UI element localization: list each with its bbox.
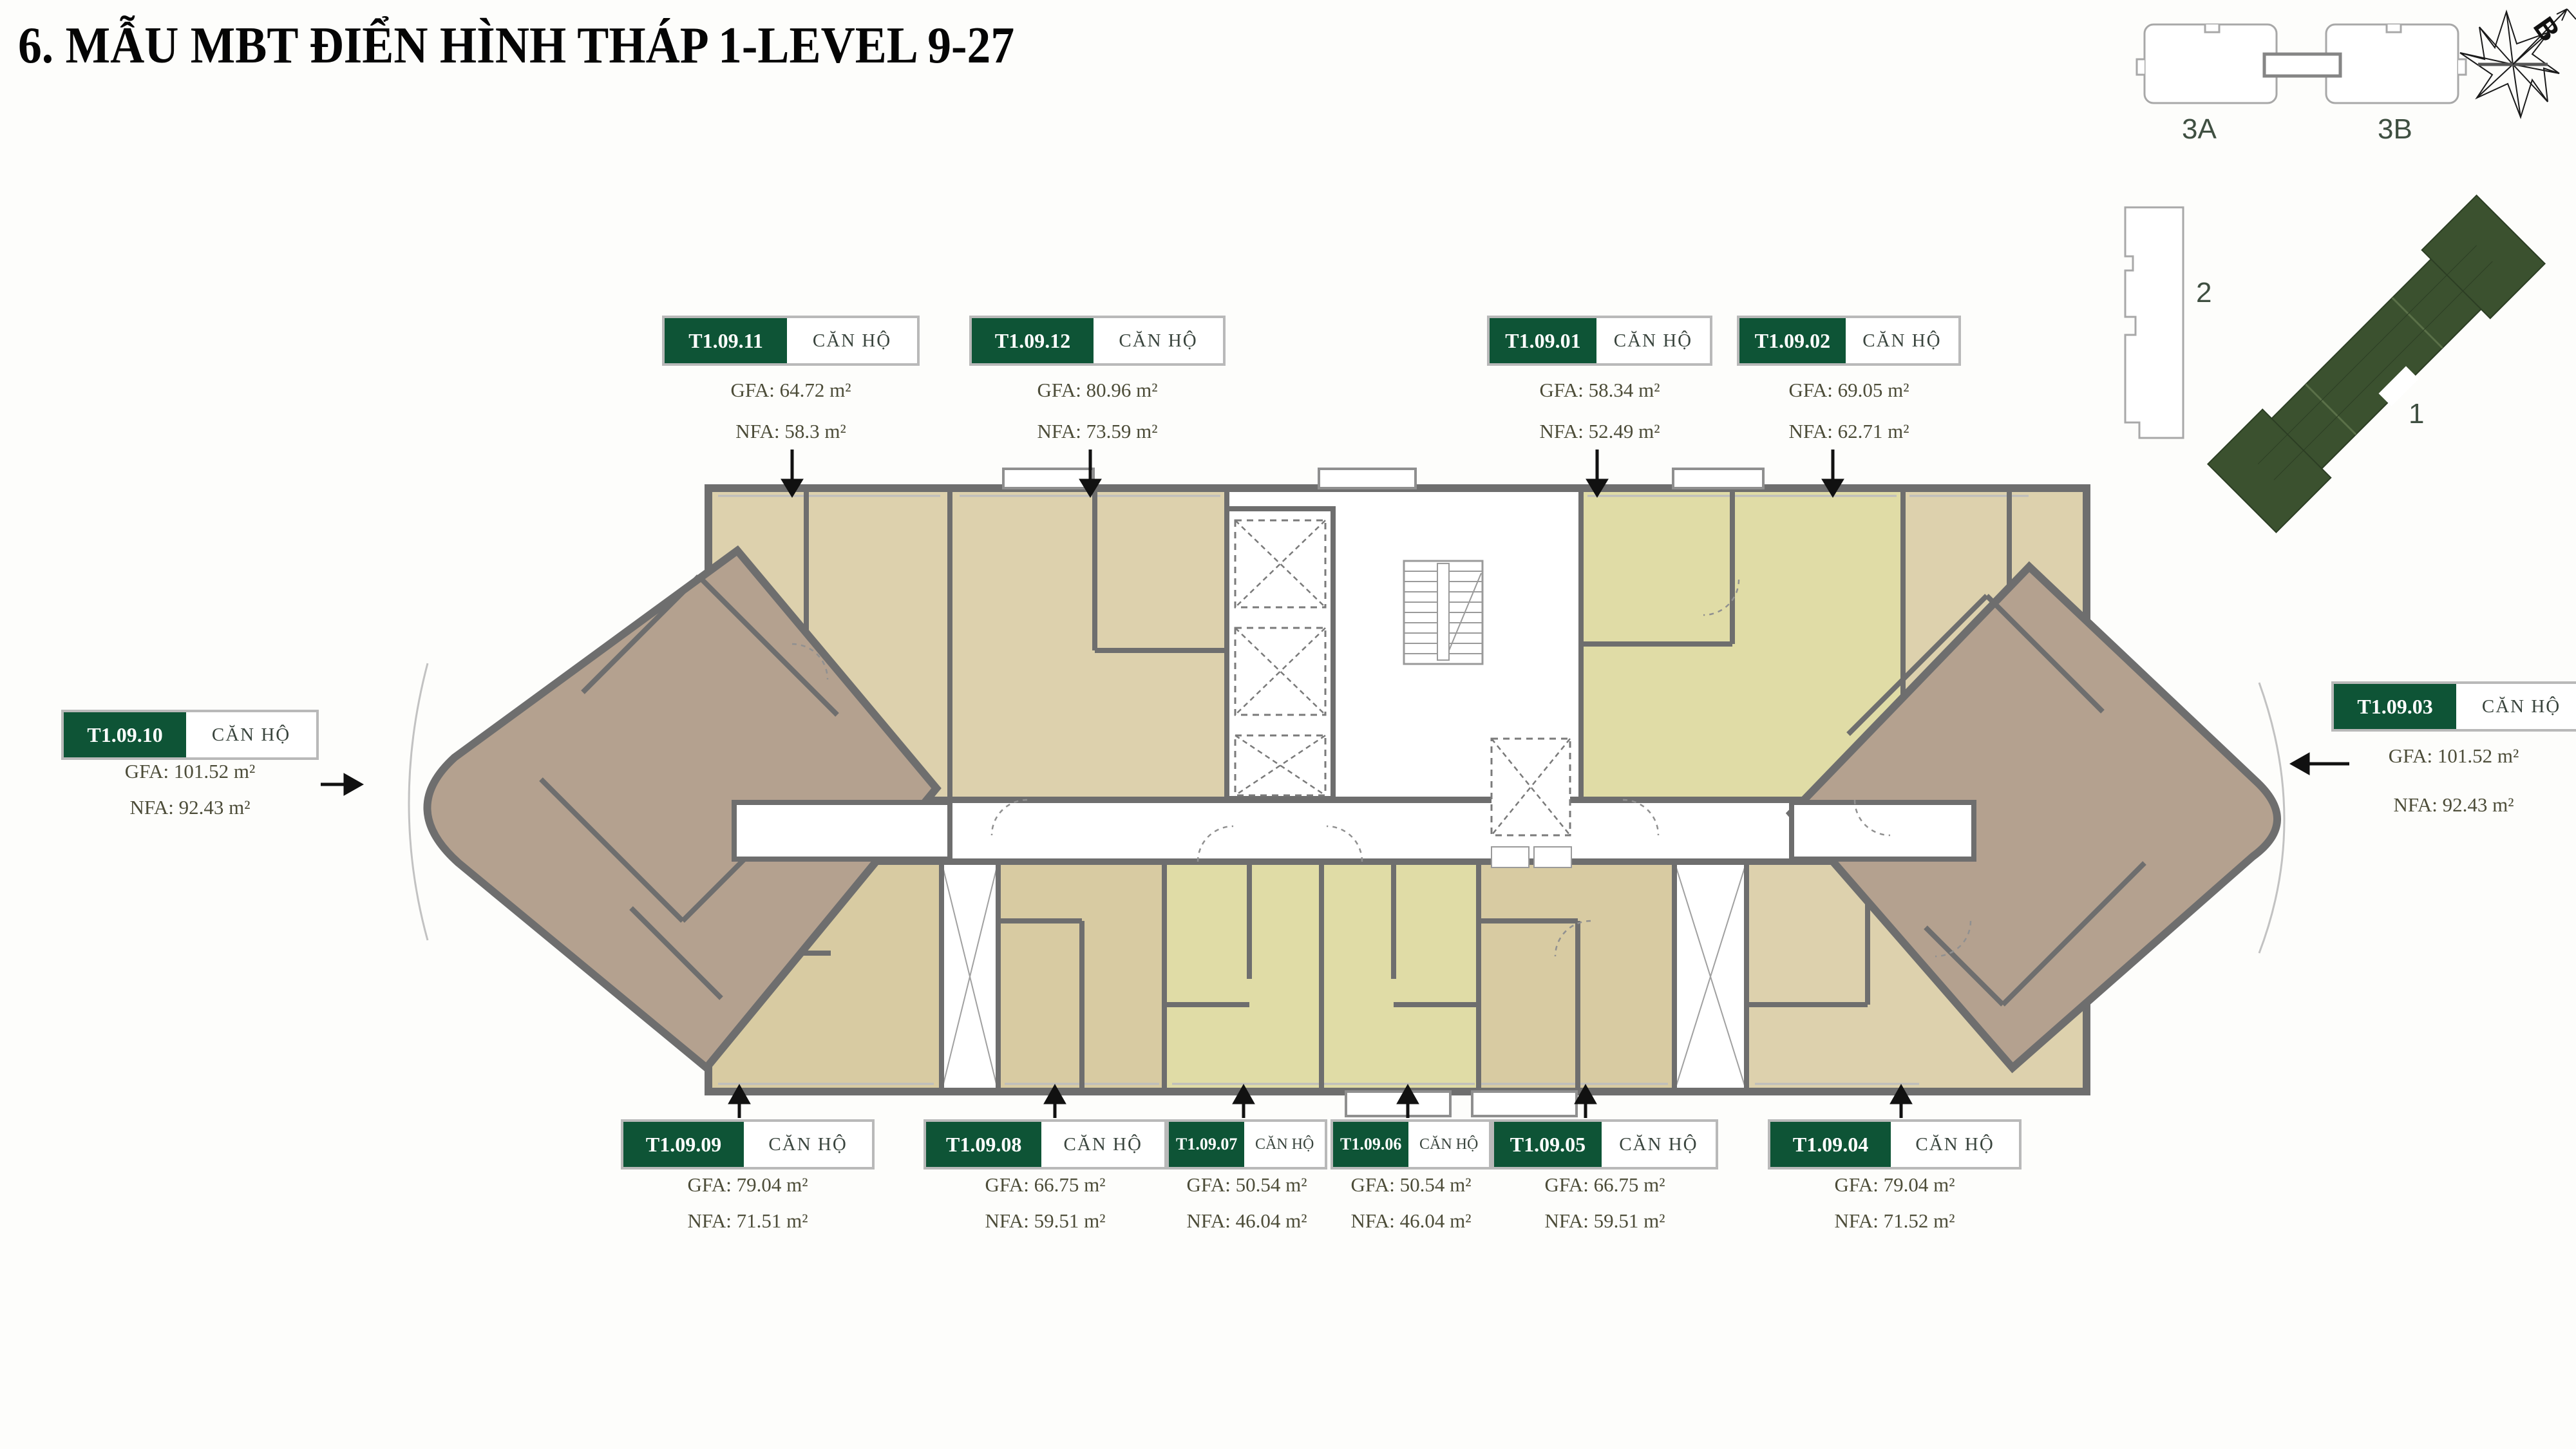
unit-type: CĂN HỘ	[1244, 1122, 1325, 1167]
unit-gfa: GFA: 80.96 m²	[969, 379, 1226, 402]
unit-gfa: GFA: 58.34 m²	[1487, 379, 1712, 402]
unit-label-t1-09-04: T1.09.04 CĂN HỘ	[1768, 1119, 2022, 1170]
unit-label-t1-09-12: T1.09.12 CĂN HỘ	[969, 316, 1226, 366]
unit-label-t1-09-08: T1.09.08 CĂN HỘ	[923, 1119, 1167, 1170]
keyplan-label-2: 2	[2196, 277, 2211, 309]
unit-label-t1-09-09: T1.09.09 CĂN HỘ	[621, 1119, 875, 1170]
unit-gfa: GFA: 101.52 m²	[61, 760, 319, 783]
staircase	[1404, 561, 1482, 664]
unit-code: T1.09.03	[2334, 684, 2456, 729]
key-plan	[2125, 9, 2576, 533]
keyplan-block-3b	[2326, 24, 2458, 103]
unit-type: CĂN HỘ	[1596, 318, 1710, 363]
page-title: 6. MẪU MBT ĐIỂN HÌNH THÁP 1-LEVEL 9-27	[18, 17, 1014, 75]
unit-nfa: NFA: 92.43 m²	[2331, 793, 2576, 817]
keyplan-label-1: 1	[2409, 398, 2424, 430]
unit-label-t1-09-02: T1.09.02 CĂN HỘ	[1737, 316, 1961, 366]
unit-type: CĂN HỘ	[1602, 1122, 1716, 1167]
unit-type: CĂN HỘ	[1891, 1122, 2019, 1167]
unit-type: CĂN HỘ	[1094, 318, 1223, 363]
unit-code: T1.09.05	[1494, 1122, 1602, 1167]
unit-label-t1-09-03: T1.09.03 CĂN HỘ	[2331, 681, 2576, 732]
unit-gfa: GFA: 50.54 m²	[1331, 1173, 1492, 1197]
unit-code: T1.09.07	[1169, 1122, 1244, 1167]
unit-nfa: NFA: 62.71 m²	[1737, 420, 1961, 443]
unit-nfa: NFA: 73.59 m²	[969, 420, 1226, 443]
unit-nfa: NFA: 46.04 m²	[1166, 1209, 1327, 1233]
unit-type: CĂN HỘ	[744, 1122, 872, 1167]
unit-code: T1.09.04	[1770, 1122, 1891, 1167]
unit-label-t1-09-06: T1.09.06 CĂN HỘ	[1331, 1119, 1492, 1170]
unit-code: T1.09.11	[665, 318, 787, 363]
unit-label-t1-09-01: T1.09.01 CĂN HỘ	[1487, 316, 1712, 366]
unit-gfa: GFA: 64.72 m²	[662, 379, 920, 402]
keyplan-block-3a	[2145, 24, 2277, 103]
unit-code: T1.09.06	[1333, 1122, 1408, 1167]
unit-nfa: NFA: 58.3 m²	[662, 420, 920, 443]
keyplan-label-3a: 3A	[2182, 113, 2217, 146]
unit-nfa: NFA: 71.51 m²	[621, 1209, 875, 1233]
unit-label-t1-09-07: T1.09.07 CĂN HỘ	[1166, 1119, 1327, 1170]
unit-code: T1.09.08	[926, 1122, 1041, 1167]
corridor-left	[734, 802, 950, 859]
unit-gfa: GFA: 66.75 m²	[923, 1173, 1167, 1197]
keyplan-block-1	[2208, 195, 2544, 532]
unit-label-t1-09-05: T1.09.05 CĂN HỘ	[1492, 1119, 1718, 1170]
unit-gfa: GFA: 50.54 m²	[1166, 1173, 1327, 1197]
unit-type: CĂN HỘ	[1408, 1122, 1489, 1167]
unit-type: CĂN HỘ	[787, 318, 917, 363]
unit-gfa: GFA: 101.52 m²	[2331, 744, 2576, 768]
unit-code: T1.09.09	[623, 1122, 744, 1167]
unit-code: T1.09.01	[1490, 318, 1596, 363]
unit-gfa: GFA: 69.05 m²	[1737, 379, 1961, 402]
unit-gfa: GFA: 66.75 m²	[1492, 1173, 1718, 1197]
unit-type: CĂN HỘ	[1846, 318, 1958, 363]
unit-nfa: NFA: 52.49 m²	[1487, 420, 1712, 443]
keyplan-label-3b: 3B	[2378, 113, 2412, 146]
unit-nfa: NFA: 71.52 m²	[1768, 1209, 2022, 1233]
unit-type: CĂN HỘ	[1041, 1122, 1164, 1167]
arrow-right	[321, 773, 363, 795]
unit-gfa: GFA: 79.04 m²	[621, 1173, 875, 1197]
unit-type: CĂN HỘ	[2456, 684, 2576, 729]
corridor-right	[1792, 802, 1974, 859]
unit-gfa: GFA: 79.04 m²	[1768, 1173, 2022, 1197]
unit-label-t1-09-11: T1.09.11 CĂN HỘ	[662, 316, 920, 366]
unit-label-t1-09-10: T1.09.10 CĂN HỘ	[61, 710, 319, 760]
unit-code: T1.09.10	[64, 712, 186, 757]
unit-nfa: NFA: 92.43 m²	[61, 796, 319, 819]
unit-nfa: NFA: 59.51 m²	[923, 1209, 1167, 1233]
keyplan-bridge	[2264, 54, 2340, 76]
unit-code: T1.09.02	[1739, 318, 1846, 363]
unit-nfa: NFA: 46.04 m²	[1331, 1209, 1492, 1233]
unit-type: CĂN HỘ	[186, 712, 316, 757]
keyplan-block-2	[2125, 207, 2183, 438]
unit-code: T1.09.12	[972, 318, 1094, 363]
unit-nfa: NFA: 59.51 m²	[1492, 1209, 1718, 1233]
